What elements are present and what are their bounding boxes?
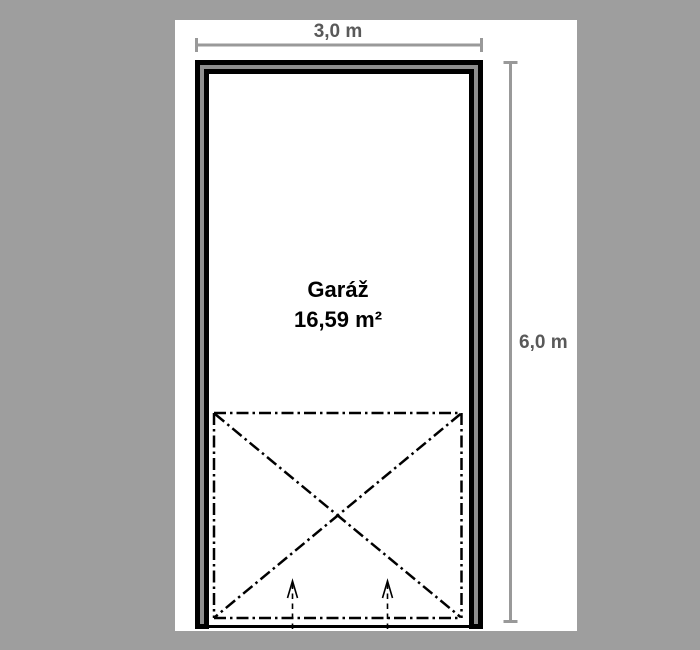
- door-direction-arrows: [288, 581, 393, 629]
- walls: [195, 60, 483, 629]
- wall-top-core: [200, 65, 478, 69]
- width-dimension-label: 3,0 m: [314, 21, 363, 42]
- room-area-label: 16,59 m²: [294, 307, 382, 332]
- door-arrow-left: [288, 581, 298, 629]
- door-arrow-right: [383, 581, 393, 629]
- room-name-label: Garáž: [307, 277, 368, 302]
- height-dimension: 6,0 m: [504, 61, 568, 622]
- room-label: Garáž 16,59 m²: [294, 277, 382, 332]
- height-dimension-label: 6,0 m: [519, 332, 568, 353]
- floor-plan: 3,0 m 6,0 m: [0, 0, 700, 650]
- wall-left-core: [200, 65, 204, 624]
- plan-drawing: 3,0 m 6,0 m: [0, 0, 700, 650]
- wall-right-core: [474, 65, 478, 624]
- width-dimension: 3,0 m: [195, 21, 483, 52]
- garage-door-swing: [214, 413, 462, 618]
- door-threshold-line: [209, 625, 469, 628]
